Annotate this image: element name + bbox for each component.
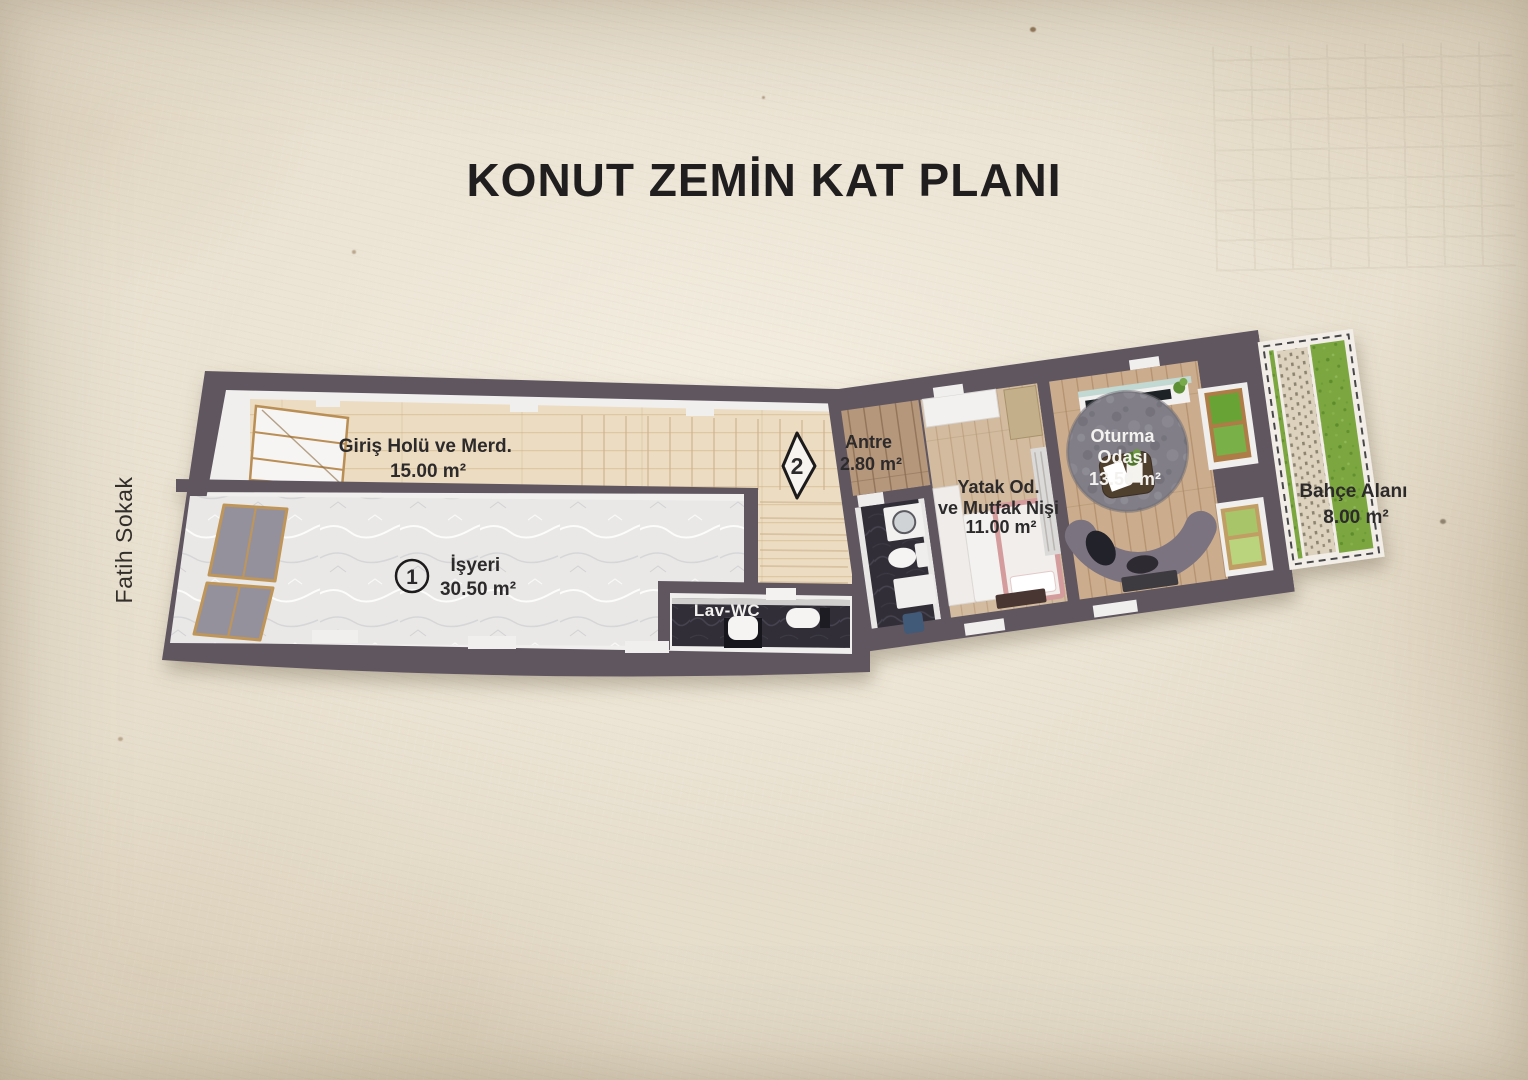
section-marker-number: 2 [791, 453, 804, 479]
window-glass [1225, 508, 1258, 536]
label-oturma: Oturma Odası 13.50 m² [1089, 426, 1161, 489]
bath-cabinet [893, 574, 937, 609]
wc-toilet-tank [820, 608, 830, 628]
unit-marker-number: 1 [406, 566, 418, 589]
label-lav-wc: Lav-WC [694, 601, 760, 620]
laundry-basket [902, 612, 925, 635]
floor-plan-page: { "title": "KONUT ZEMİN KAT PLANI", "str… [0, 0, 1528, 1080]
street-name-label: Fatih Sokak [111, 420, 145, 660]
page-title: KONUT ZEMİN KAT PLANI [0, 153, 1528, 207]
window-glass [1213, 424, 1247, 456]
entrance-window [250, 406, 348, 487]
left-block [162, 371, 870, 676]
wc-toilet [786, 608, 820, 628]
kitchen-cabinet [1004, 386, 1043, 440]
wc-cistern [766, 588, 796, 600]
window-glass [1209, 392, 1243, 424]
building-plan [162, 317, 1388, 676]
window-glass [1229, 536, 1262, 565]
